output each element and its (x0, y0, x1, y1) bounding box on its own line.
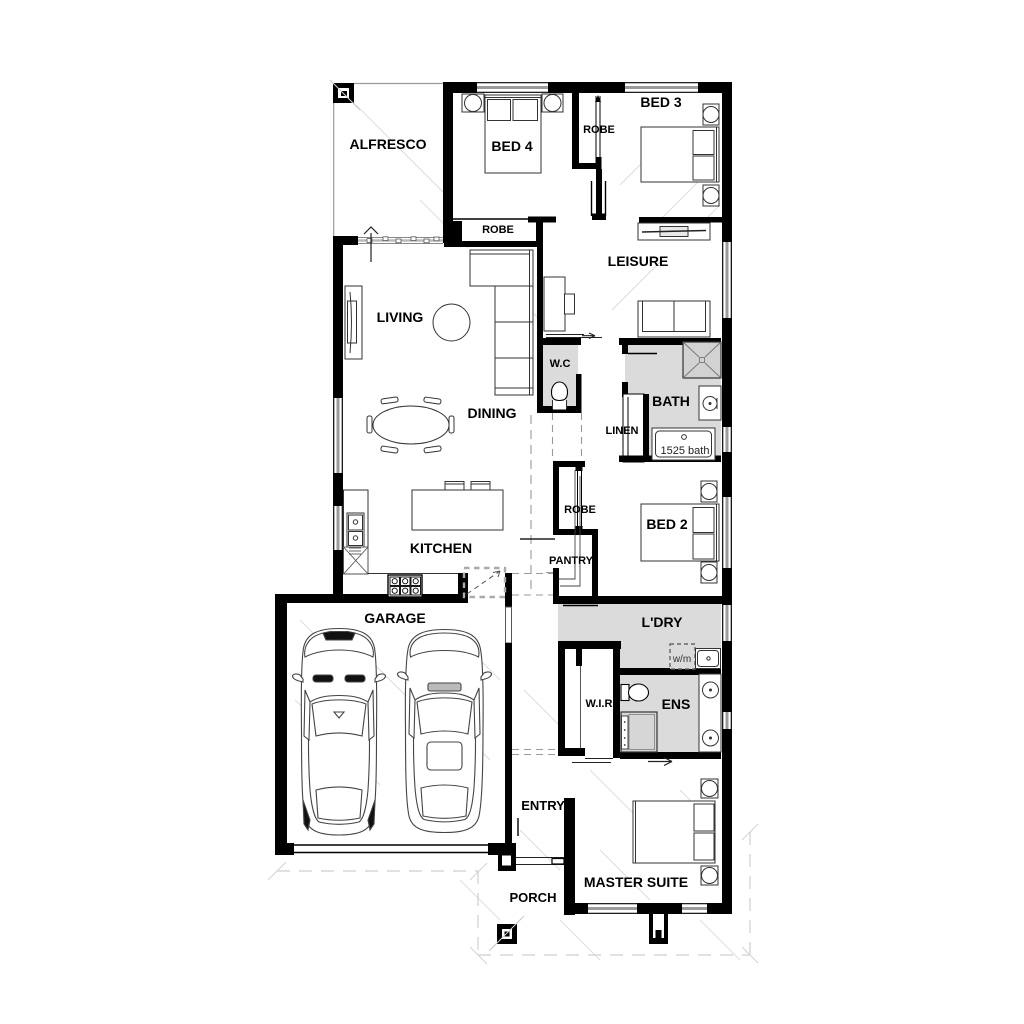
svg-text:BED 3: BED 3 (640, 94, 681, 110)
svg-text:ENTRY: ENTRY (521, 798, 565, 813)
svg-text:LEISURE: LEISURE (608, 253, 669, 269)
svg-text:PORCH: PORCH (510, 890, 557, 905)
svg-text:ROBE: ROBE (583, 124, 615, 136)
svg-text:w/m: w/m (672, 654, 691, 665)
svg-text:DINING: DINING (468, 405, 517, 421)
svg-text:BATH: BATH (652, 393, 690, 409)
svg-text:PANTRY: PANTRY (549, 555, 594, 567)
svg-text:W.I.R: W.I.R (586, 698, 613, 710)
svg-text:ROBE: ROBE (482, 224, 514, 236)
svg-text:MASTER SUITE: MASTER SUITE (584, 874, 688, 890)
svg-text:ROBE: ROBE (564, 504, 596, 516)
svg-text:ENS: ENS (662, 696, 691, 712)
svg-text:BED 4: BED 4 (491, 138, 532, 154)
svg-text:LINEN: LINEN (606, 425, 639, 437)
svg-text:ALFRESCO: ALFRESCO (350, 136, 427, 152)
svg-text:L'DRY: L'DRY (642, 614, 684, 630)
svg-text:GARAGE: GARAGE (364, 610, 425, 626)
svg-text:BED 2: BED 2 (646, 516, 687, 532)
svg-text:W.C: W.C (550, 358, 571, 370)
svg-text:KITCHEN: KITCHEN (410, 540, 472, 556)
svg-text:LIVING: LIVING (377, 309, 424, 325)
svg-text:1525 bath: 1525 bath (661, 445, 710, 457)
